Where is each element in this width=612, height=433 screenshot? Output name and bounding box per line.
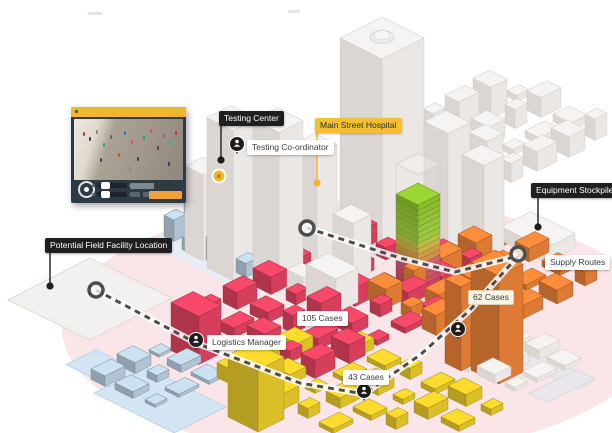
case-count-label-orange: 62 Cases <box>468 290 514 305</box>
pedestrian-figure <box>170 141 172 145</box>
cctv-player-controls <box>71 180 186 203</box>
route-waypoint-circle[interactable] <box>89 283 103 297</box>
pedestrian-figure <box>137 157 139 161</box>
confirm-button[interactable] <box>149 191 182 199</box>
slider-knob[interactable] <box>101 191 110 198</box>
leader-dot <box>313 179 320 186</box>
testing-coordinator-label: Testing Co-ordinator <box>247 140 334 155</box>
pedestrian-figure <box>110 135 112 139</box>
pedestrian-figure <box>175 131 177 135</box>
case-count-label-yellow: 43 Cases <box>343 370 389 385</box>
zoom-out-button[interactable] <box>130 192 140 197</box>
tilt-slider[interactable] <box>97 192 127 197</box>
pedestrian-figure <box>118 153 120 157</box>
leader-dot <box>46 282 53 289</box>
route-waypoint-circle[interactable] <box>300 221 314 235</box>
logistics-manager-label: Logistics Manager <box>207 335 286 350</box>
testing-center-label: Testing Center <box>219 111 284 126</box>
route-waypoint-circle[interactable] <box>511 247 525 261</box>
cctv-video-feed <box>74 119 183 180</box>
slider-knob[interactable] <box>101 182 110 189</box>
pedestrian-figure <box>129 167 131 171</box>
supply-routes-label: Supply Routes <box>545 255 610 270</box>
leader-dot <box>217 156 224 163</box>
pedestrian-figure <box>143 136 145 140</box>
leader-dot <box>534 223 541 230</box>
pedestrian-figure <box>89 137 91 141</box>
isometric-city-map <box>0 0 612 433</box>
main-street-hospital-label: Main Street Hospital <box>315 118 402 133</box>
pedestrian-figure <box>83 132 85 136</box>
reset-view-button[interactable] <box>130 183 154 189</box>
potential-field-facility-label: Potential Field Facility Location <box>45 238 172 253</box>
pedestrian-figure <box>163 134 165 138</box>
cctv-player-titlebar[interactable] <box>71 107 186 117</box>
pan-slider[interactable] <box>97 183 127 188</box>
pedestrian-figure <box>131 140 133 144</box>
case-count-label-red: 105 Cases <box>297 311 348 326</box>
equipment-stockpile-label: Equipment Stockpile <box>531 183 612 198</box>
window-dot-icon <box>75 110 78 113</box>
pedestrian-figure <box>96 130 98 134</box>
pedestrian-figure <box>103 143 105 147</box>
pedestrian-figure <box>124 131 126 135</box>
pedestrian-figure <box>150 129 152 133</box>
pedestrian-figure <box>100 158 102 162</box>
pedestrian-figure <box>157 146 159 150</box>
outbreak-map-stage: Testing Center Testing Co-ordinator Main… <box>0 0 612 433</box>
pedestrian-figure <box>168 162 170 166</box>
cctv-player-window <box>71 107 186 203</box>
